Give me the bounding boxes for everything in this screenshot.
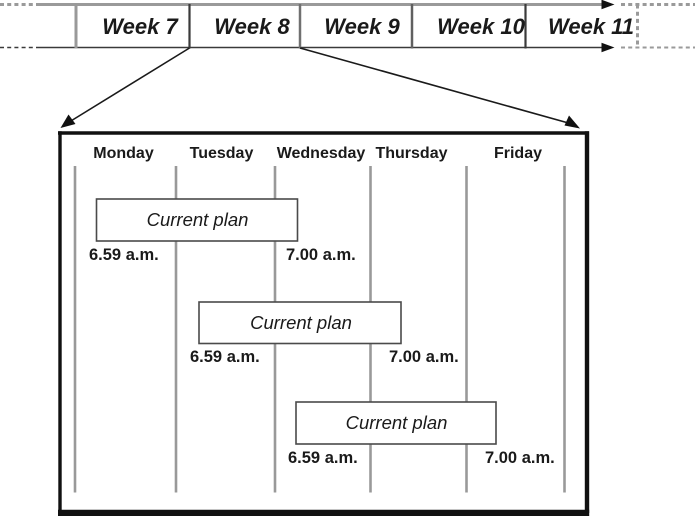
svg-text:Current plan: Current plan [147, 209, 249, 230]
svg-text:Week 11: Week 11 [548, 14, 634, 39]
svg-text:Monday: Monday [93, 145, 154, 162]
svg-text:6.59 a.m.: 6.59 a.m. [89, 246, 159, 264]
svg-text:Thursday: Thursday [375, 145, 447, 162]
svg-text:Week 10: Week 10 [437, 14, 525, 39]
svg-text:Week 9: Week 9 [324, 14, 400, 39]
svg-text:Week 7: Week 7 [102, 14, 179, 39]
svg-text:Current plan: Current plan [250, 312, 352, 333]
svg-text:6.59 a.m.: 6.59 a.m. [288, 449, 358, 467]
svg-text:7.00 a.m.: 7.00 a.m. [389, 348, 459, 366]
svg-text:7.00 a.m.: 7.00 a.m. [485, 449, 555, 467]
svg-text:6.59 a.m.: 6.59 a.m. [190, 348, 260, 366]
svg-text:Current plan: Current plan [346, 412, 448, 433]
svg-text:Tuesday: Tuesday [190, 145, 254, 162]
svg-text:Friday: Friday [494, 145, 542, 162]
svg-text:7.00 a.m.: 7.00 a.m. [286, 246, 356, 264]
svg-text:Wednesday: Wednesday [277, 145, 366, 162]
svg-text:Week 8: Week 8 [214, 14, 290, 39]
